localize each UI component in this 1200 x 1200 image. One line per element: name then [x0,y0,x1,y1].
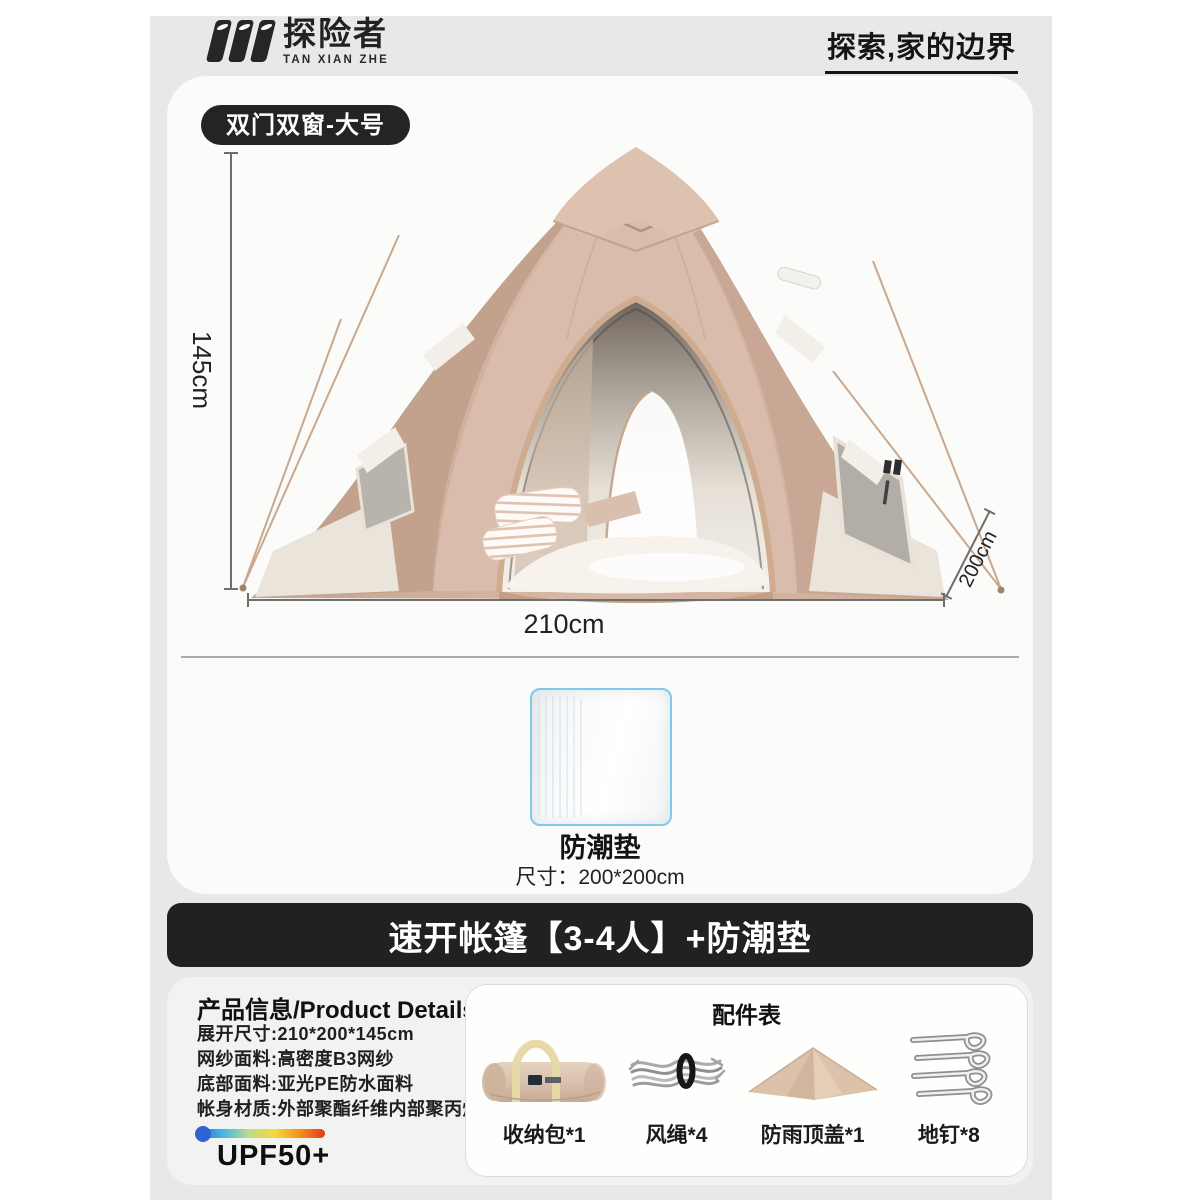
height-dimension-line [230,152,232,590]
moisture-mat-name: 防潮垫 [167,826,1033,865]
spec-list: 展开尺寸:210*200*145cm 网纱面料:高密度B3网纱 底部面料:亚光P… [197,1022,481,1122]
brand-name: 探险者 [283,17,389,51]
accessory-item: 风绳*4 [610,1027,742,1149]
brand-logo: 探险者 TAN XIAN ZHE [205,17,389,70]
spec-material: 帐身材质:外部聚酯纤维内部聚丙烯 [197,1097,481,1122]
spec-bottom: 底部面料:亚光PE防水面料 [197,1072,481,1097]
accessory-item: 防雨顶盖*1 [743,1027,883,1149]
brand-name-en: TAN XIAN ZHE [283,54,389,66]
bundle-title-banner: 速开帐篷【3-4人】+防潮垫 [167,903,1033,967]
accessories-title: 配件表 [466,996,1027,1030]
section-divider [181,656,1019,658]
upf-label: UPF50+ [217,1140,330,1173]
moisture-mat-image [530,688,672,826]
accessory-label: 风绳*4 [646,1119,708,1149]
accessory-label: 防雨顶盖*1 [761,1119,865,1149]
accessory-label: 收纳包*1 [503,1119,586,1149]
accessories-items: 收纳包*1 [478,1027,1015,1149]
accessories-panel: 配件表 [465,984,1028,1177]
product-info-card: 产品信息/Product Details 展开尺寸:210*200*145cm … [167,977,1033,1185]
product-details-title: 产品信息/Product Details [197,990,476,1025]
ground-nails-icon [901,1027,997,1115]
spec-mesh: 网纱面料:高密度B3网纱 [197,1047,481,1072]
height-dimension-label: 145cm [191,330,217,410]
brand-logo-icon [205,17,279,70]
spec-size: 展开尺寸:210*200*145cm [197,1022,481,1047]
product-detail-page: 探险者 TAN XIAN ZHE 探索,家的边界 双门双窗-大号 [0,0,1200,1200]
brand-logo-text: 探险者 TAN XIAN ZHE [283,17,389,66]
width-dimension-line [247,599,945,601]
wind-rope-icon [624,1027,728,1115]
moisture-mat-size: 尺寸：200*200cm [167,861,1033,891]
width-dimension-label: 210cm [494,609,634,640]
bundle-title: 速开帐篷【3-4人】+防潮垫 [389,911,812,960]
hero-card: 双门双窗-大号 [167,76,1033,894]
accessory-label: 地钉*8 [918,1119,980,1149]
rain-cover-icon [743,1027,883,1115]
storage-bag-icon [478,1027,610,1115]
accessory-item: 收纳包*1 [478,1027,610,1149]
brand-slogan: 探索,家的边界 [825,24,1018,74]
upf-gradient-bar [198,1129,325,1138]
accessory-item: 地钉*8 [883,1027,1015,1149]
tent-illustration [237,139,1009,611]
